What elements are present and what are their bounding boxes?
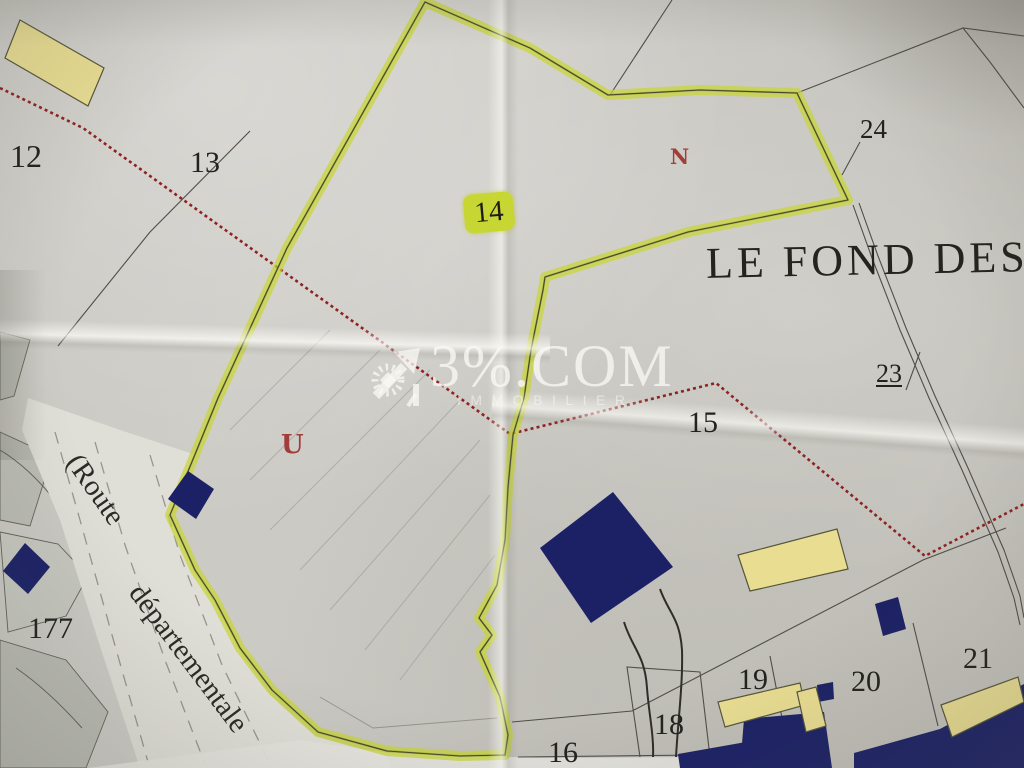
parcel-label-20: 20 xyxy=(851,667,881,697)
building-navy xyxy=(540,492,673,623)
parcel-label-15: 15 xyxy=(688,408,718,438)
parcel-shape xyxy=(0,640,108,768)
parcel-label-24: 24 xyxy=(860,116,887,143)
slope-hatch-lines xyxy=(230,330,495,680)
highlighter-stroke xyxy=(170,2,848,756)
highlighted-parcel-boundary xyxy=(170,2,848,756)
building-beige xyxy=(5,20,104,106)
parcel-label-19: 19 xyxy=(738,665,768,695)
parcel-label-23: 23 xyxy=(876,361,902,387)
parcel-label-12: 12 xyxy=(10,140,42,172)
terrain-line xyxy=(320,697,497,728)
zone-letter-U: U xyxy=(281,432,304,458)
parcel-label-18: 18 xyxy=(654,710,684,740)
building-navy xyxy=(875,597,906,636)
cadastral-map-photo: LE FOND DES B (Route départementale 14 1… xyxy=(0,0,1024,768)
highlighter-core xyxy=(170,2,848,756)
parcel-label-21: 21 xyxy=(963,644,993,674)
boundary-ink-line xyxy=(170,2,848,756)
building-navy-strip xyxy=(678,742,750,768)
zone-letter-N: N xyxy=(670,146,689,167)
parcel-label-13: 13 xyxy=(190,148,220,178)
place-name-title: LE FOND DES B xyxy=(706,230,1024,289)
building-beige xyxy=(738,529,848,591)
parcel-label-16: 16 xyxy=(548,738,578,768)
highlighted-parcel-label: 14 xyxy=(462,191,515,234)
parcel-label-177: 177 xyxy=(28,614,73,644)
parcel-label-14: 14 xyxy=(473,195,505,230)
parcel-shape xyxy=(0,332,30,400)
